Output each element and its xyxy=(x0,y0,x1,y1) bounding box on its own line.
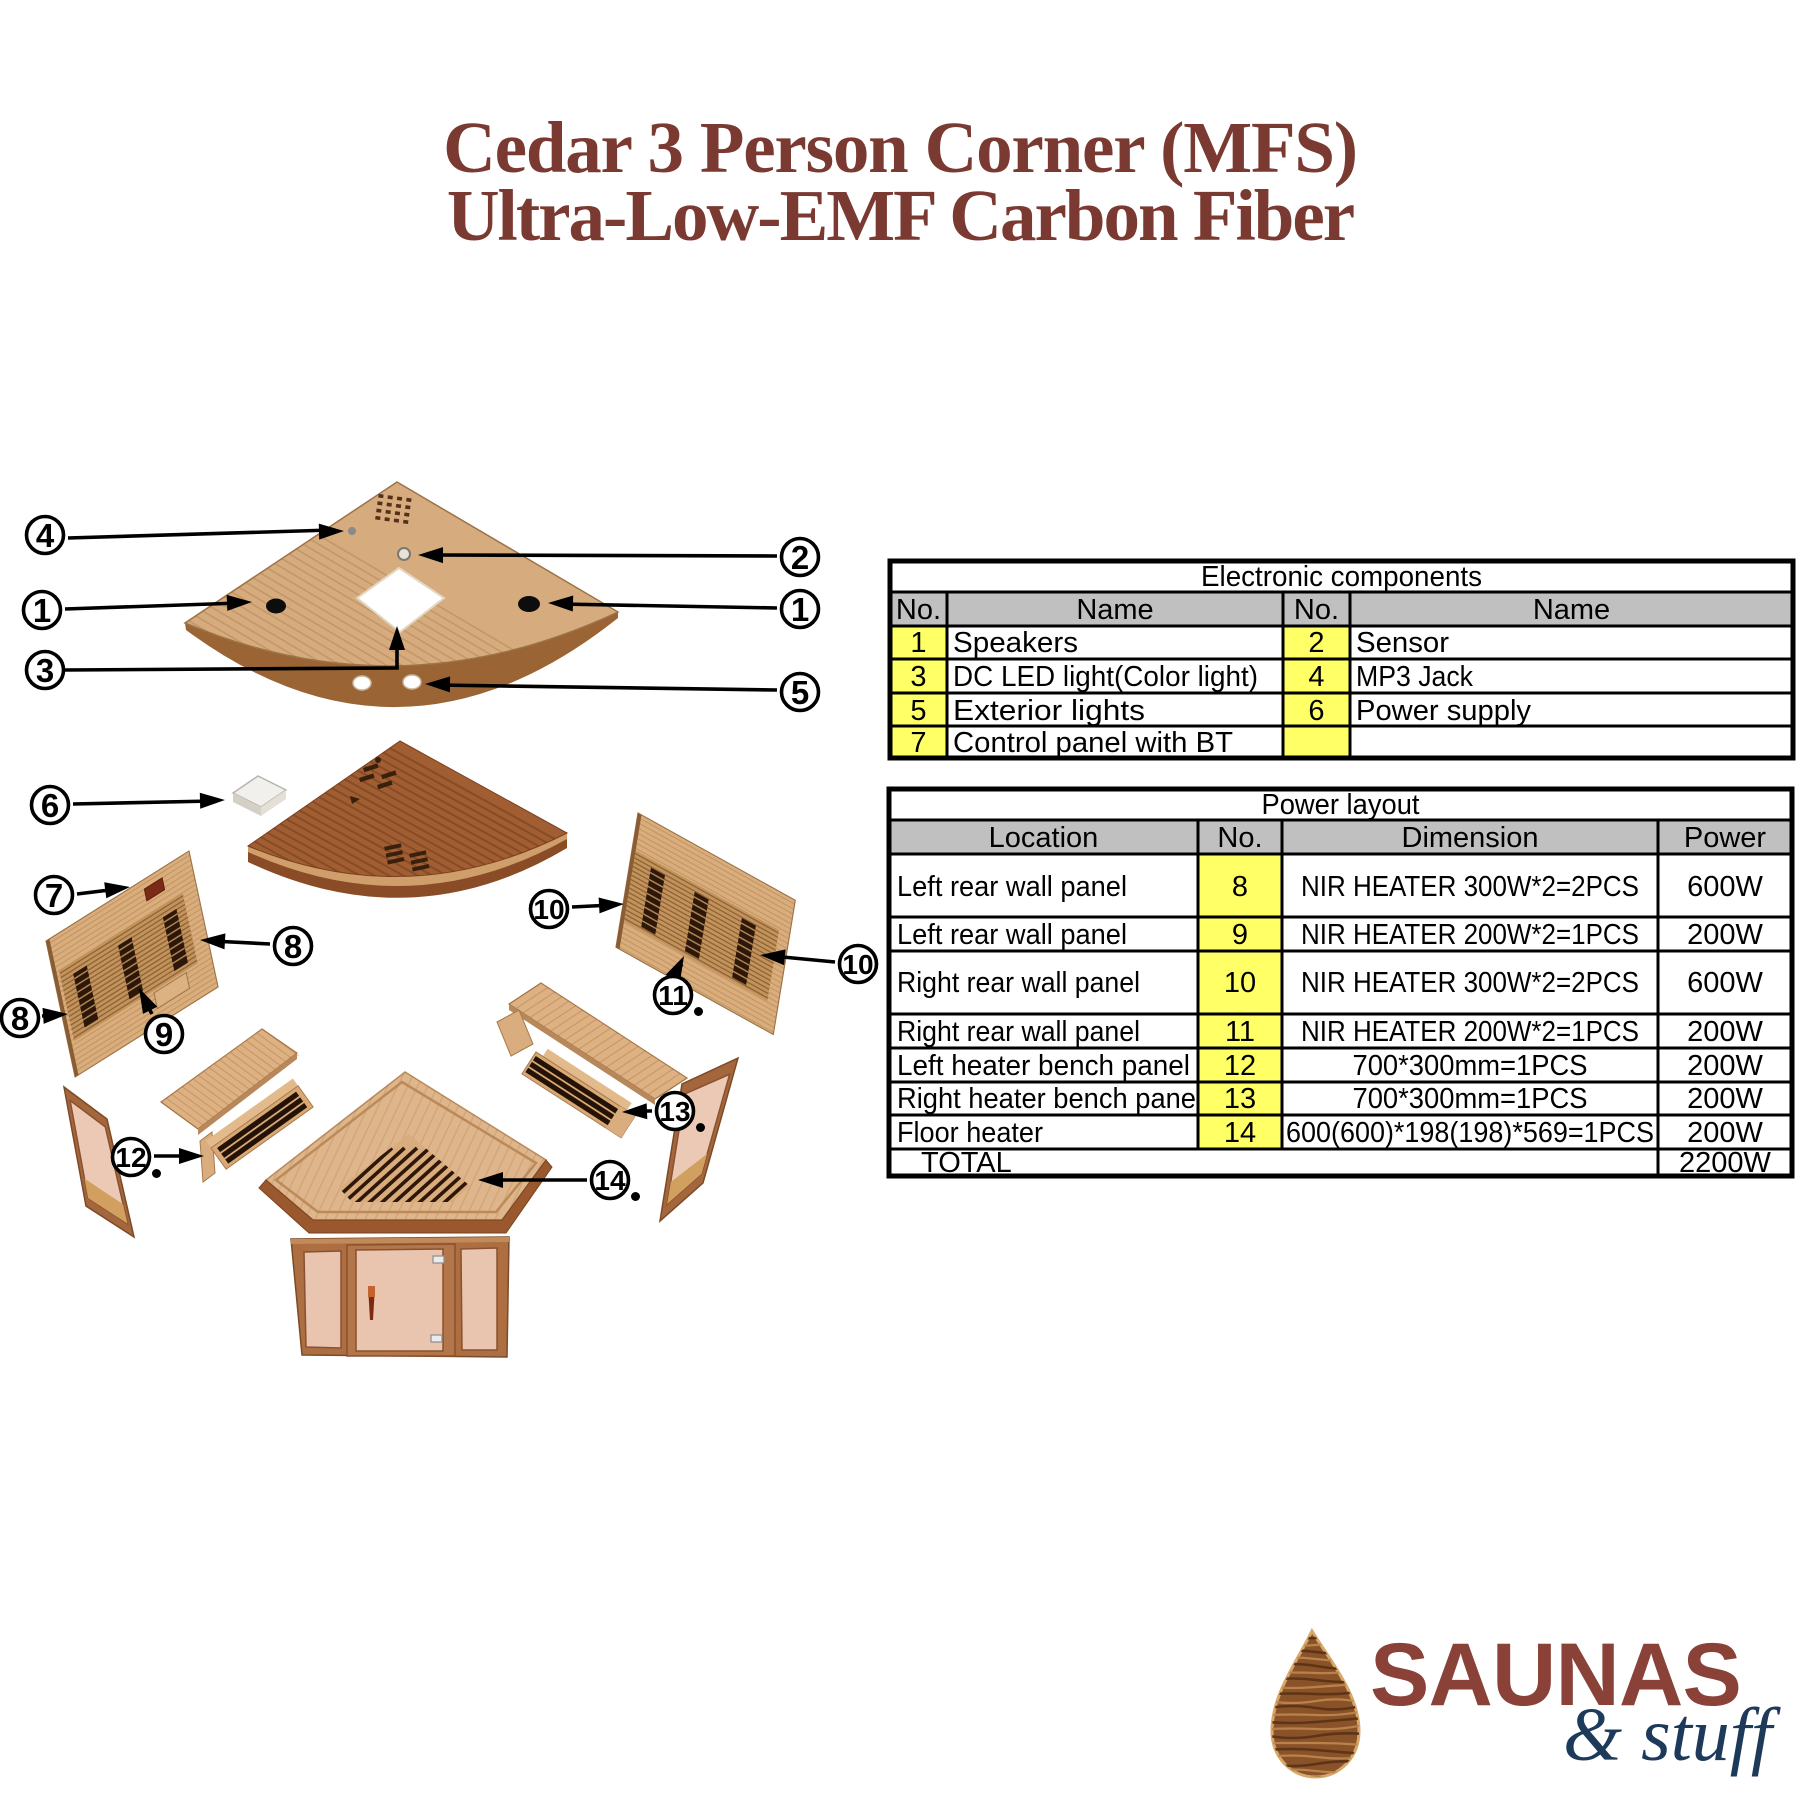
svg-text:4: 4 xyxy=(36,517,55,554)
svg-text:600W: 600W xyxy=(1687,967,1763,999)
svg-text:3: 3 xyxy=(910,661,926,693)
svg-text:1: 1 xyxy=(910,627,926,659)
svg-text:6: 6 xyxy=(1308,695,1324,727)
svg-text:13: 13 xyxy=(1224,1083,1256,1115)
svg-text:Dimension: Dimension xyxy=(1402,822,1539,854)
svg-text:& stuff: & stuff xyxy=(1563,1693,1781,1777)
svg-text:MP3 Jack: MP3 Jack xyxy=(1356,661,1473,693)
svg-text:5: 5 xyxy=(910,695,926,727)
svg-text:8: 8 xyxy=(11,1000,29,1037)
svg-text:9: 9 xyxy=(1232,919,1248,951)
svg-text:14: 14 xyxy=(1224,1117,1256,1149)
svg-text:Location: Location xyxy=(989,822,1099,854)
svg-text:1: 1 xyxy=(791,591,809,628)
svg-text:14: 14 xyxy=(594,1165,626,1196)
svg-text:2: 2 xyxy=(1308,627,1324,659)
svg-text:Right rear wall panel: Right rear wall panel xyxy=(897,967,1140,999)
svg-text:NIR HEATER 200W*2=1PCS: NIR HEATER 200W*2=1PCS xyxy=(1301,919,1639,951)
svg-text:Floor heater: Floor heater xyxy=(897,1117,1043,1149)
svg-text:200W: 200W xyxy=(1687,1050,1763,1082)
svg-text:Name: Name xyxy=(1076,594,1153,626)
svg-text:Power supply: Power supply xyxy=(1356,695,1531,727)
svg-text:Name: Name xyxy=(1533,594,1610,626)
svg-text:200W: 200W xyxy=(1687,1016,1763,1048)
svg-text:Exterior lights: Exterior lights xyxy=(953,695,1145,727)
svg-text:No.: No. xyxy=(896,594,941,626)
svg-text:11: 11 xyxy=(658,980,688,1011)
svg-text:200W: 200W xyxy=(1687,1083,1763,1115)
svg-text:11: 11 xyxy=(1225,1016,1255,1048)
svg-text:200W: 200W xyxy=(1687,1117,1763,1149)
svg-text:7: 7 xyxy=(910,727,926,759)
svg-text:DC LED light(Color light): DC LED light(Color light) xyxy=(953,661,1258,693)
svg-text:Power: Power xyxy=(1684,822,1767,854)
svg-text:600(600)*198(198)*569=1PCS: 600(600)*198(198)*569=1PCS xyxy=(1286,1117,1654,1149)
svg-text:9: 9 xyxy=(155,1016,173,1053)
svg-text:Ultra-Low-EMF Carbon Fiber: Ultra-Low-EMF Carbon Fiber xyxy=(447,175,1354,256)
svg-text:6: 6 xyxy=(41,787,59,824)
svg-text:700*300mm=1PCS: 700*300mm=1PCS xyxy=(1353,1083,1588,1115)
svg-text:600W: 600W xyxy=(1687,871,1763,903)
svg-text:10: 10 xyxy=(1224,967,1256,999)
svg-text:700*300mm=1PCS: 700*300mm=1PCS xyxy=(1353,1050,1588,1082)
svg-text:2: 2 xyxy=(791,539,809,576)
svg-text:Electronic components: Electronic components xyxy=(1201,561,1482,593)
svg-text:Sensor: Sensor xyxy=(1356,627,1449,659)
svg-text:No.: No. xyxy=(1217,822,1262,854)
svg-text:Control panel with BT: Control panel with BT xyxy=(953,727,1233,759)
svg-text:2200W: 2200W xyxy=(1679,1147,1772,1179)
svg-text:Power layout: Power layout xyxy=(1262,789,1420,821)
svg-text:Left rear wall panel: Left rear wall panel xyxy=(897,919,1127,951)
svg-text:12: 12 xyxy=(1224,1050,1256,1082)
svg-text:5: 5 xyxy=(791,674,809,711)
svg-text:1: 1 xyxy=(33,592,51,629)
svg-text:TOTAL: TOTAL xyxy=(921,1147,1012,1179)
svg-text:No.: No. xyxy=(1294,594,1339,626)
svg-text:NIR HEATER 300W*2=2PCS: NIR HEATER 300W*2=2PCS xyxy=(1301,967,1639,999)
svg-text:Left rear wall panel: Left rear wall panel xyxy=(897,871,1127,903)
svg-text:8: 8 xyxy=(1232,871,1248,903)
svg-text:Right rear wall panel: Right rear wall panel xyxy=(897,1016,1140,1048)
svg-text:Speakers: Speakers xyxy=(953,627,1078,659)
svg-text:NIR HEATER 200W*2=1PCS: NIR HEATER 200W*2=1PCS xyxy=(1301,1016,1639,1048)
svg-text:10: 10 xyxy=(533,894,564,925)
svg-text:Left heater bench panel: Left heater bench panel xyxy=(897,1050,1190,1082)
svg-text:3: 3 xyxy=(36,652,54,689)
svg-text:12: 12 xyxy=(115,1142,146,1173)
svg-text:Right heater bench pane: Right heater bench pane xyxy=(897,1083,1196,1115)
svg-text:10: 10 xyxy=(842,949,873,980)
svg-text:200W: 200W xyxy=(1687,919,1763,951)
svg-text:13: 13 xyxy=(659,1096,690,1127)
svg-text:NIR HEATER 300W*2=2PCS: NIR HEATER 300W*2=2PCS xyxy=(1301,871,1639,903)
svg-text:4: 4 xyxy=(1308,661,1324,693)
svg-text:7: 7 xyxy=(45,877,63,914)
svg-text:8: 8 xyxy=(284,928,302,965)
